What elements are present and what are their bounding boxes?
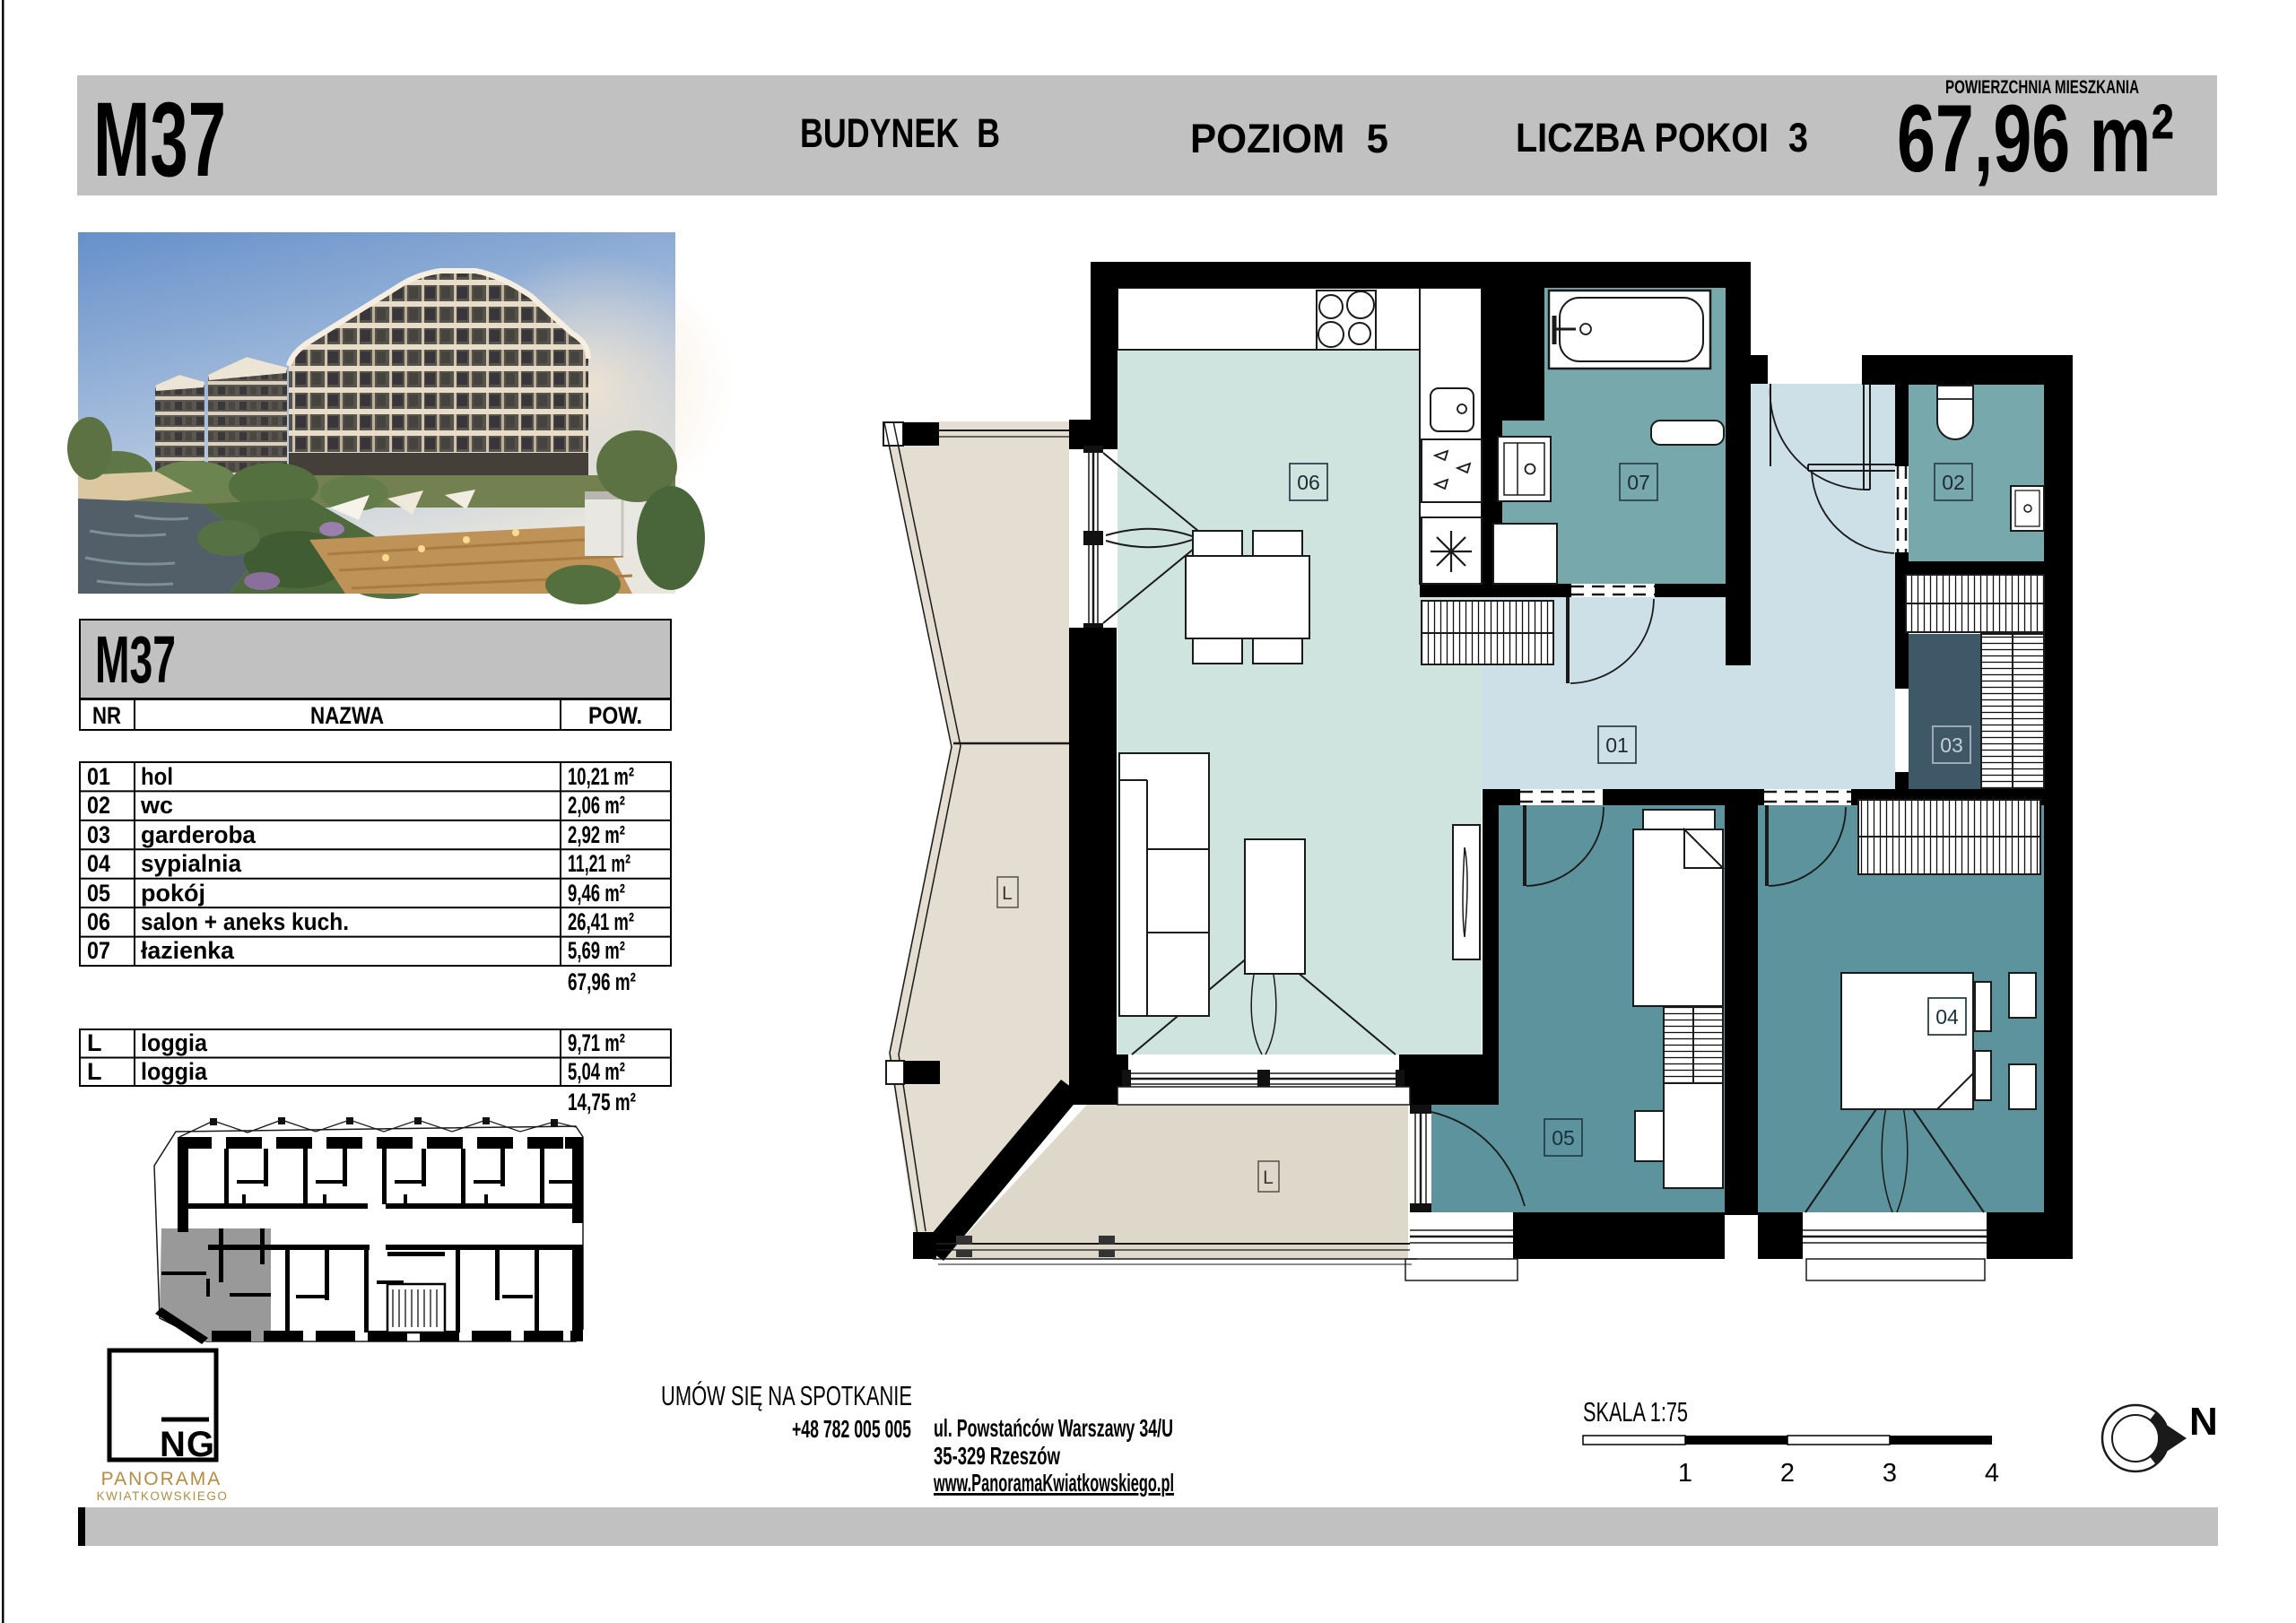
svg-text:3: 3: [1883, 1459, 1897, 1488]
svg-text:salon + aneks kuch.: salon + aneks kuch.: [141, 908, 349, 935]
svg-text:loggia: loggia: [141, 1029, 208, 1056]
svg-text:01: 01: [87, 763, 110, 790]
svg-text:N: N: [2189, 1400, 2218, 1444]
svg-text:NR: NR: [92, 702, 121, 729]
svg-text:05: 05: [1552, 1126, 1575, 1150]
svg-text:NG: NG: [160, 1425, 215, 1464]
svg-text:06: 06: [1297, 471, 1320, 494]
svg-text:hol: hol: [141, 763, 173, 790]
svg-text:L: L: [87, 1029, 102, 1056]
svg-text:67,96 m²: 67,96 m²: [568, 968, 636, 995]
svg-text:UMÓW SIĘ NA SPOTKANIE: UMÓW SIĘ NA SPOTKANIE: [661, 1380, 912, 1411]
svg-text:02: 02: [87, 792, 110, 819]
svg-text:26,41 m²: 26,41 m²: [568, 908, 634, 935]
svg-text:garderoba: garderoba: [141, 821, 257, 848]
svg-text:03: 03: [1940, 733, 1963, 757]
svg-text:07: 07: [1627, 471, 1650, 494]
svg-text:04: 04: [87, 850, 110, 877]
svg-text:14,75 m²: 14,75 m²: [568, 1089, 636, 1115]
svg-text:loggia: loggia: [141, 1058, 208, 1085]
svg-text:NAZWA: NAZWA: [310, 702, 384, 729]
svg-text:35-329 Rzeszów: 35-329 Rzeszów: [934, 1442, 1060, 1470]
svg-text:M37: M37: [95, 622, 176, 697]
svg-text:2,92 m²: 2,92 m²: [568, 821, 625, 848]
svg-text:+48 782 005 005: +48 782 005 005: [792, 1415, 911, 1443]
svg-text:POW.: POW.: [588, 702, 642, 729]
svg-text:L: L: [87, 1058, 102, 1085]
svg-text:5,69 m²: 5,69 m²: [568, 937, 625, 964]
svg-text:67,96 m²: 67,96 m²: [1897, 84, 2174, 192]
svg-text:M37: M37: [93, 81, 226, 199]
svg-text:L: L: [1002, 883, 1013, 904]
svg-text:KWIATKOWSKIEGO: KWIATKOWSKIEGO: [97, 1489, 229, 1503]
svg-text:pokój: pokój: [141, 880, 205, 907]
svg-text:łazienka: łazienka: [141, 937, 235, 964]
svg-text:www.PanoramaKwiatkowskiego.pl: www.PanoramaKwiatkowskiego.pl: [933, 1469, 1174, 1497]
svg-text:9,46 m²: 9,46 m²: [568, 880, 625, 907]
svg-text:2,06 m²: 2,06 m²: [568, 792, 625, 819]
svg-text:1: 1: [1678, 1459, 1692, 1488]
svg-text:ul. Powstańców Warszawy 34/U: ul. Powstańców Warszawy 34/U: [934, 1414, 1173, 1442]
svg-text:SKALA 1:75: SKALA 1:75: [1583, 1396, 1688, 1428]
svg-text:POZIOM 5: POZIOM 5: [1190, 116, 1388, 161]
svg-text:11,21 m²: 11,21 m²: [568, 850, 631, 877]
svg-text:04: 04: [1935, 1005, 1959, 1028]
svg-text:4: 4: [1985, 1459, 1999, 1488]
svg-text:02: 02: [1942, 471, 1965, 494]
svg-text:06: 06: [87, 908, 110, 935]
svg-text:BUDYNEK B: BUDYNEK B: [800, 110, 1000, 156]
svg-text:01: 01: [1605, 733, 1629, 757]
svg-text:05: 05: [87, 880, 110, 907]
svg-text:LICZBA POKOI 3: LICZBA POKOI 3: [1516, 115, 1808, 161]
svg-text:07: 07: [87, 937, 110, 964]
svg-text:wc: wc: [140, 792, 173, 819]
svg-text:2: 2: [1780, 1459, 1795, 1488]
svg-text:PANORAMA: PANORAMA: [101, 1469, 222, 1489]
svg-text:L: L: [1263, 1167, 1274, 1188]
svg-text:sypialnia: sypialnia: [141, 850, 242, 877]
svg-text:9,71 m²: 9,71 m²: [568, 1029, 625, 1056]
svg-text:03: 03: [87, 821, 110, 848]
svg-text:5,04 m²: 5,04 m²: [568, 1058, 625, 1085]
svg-text:10,21 m²: 10,21 m²: [568, 763, 634, 790]
